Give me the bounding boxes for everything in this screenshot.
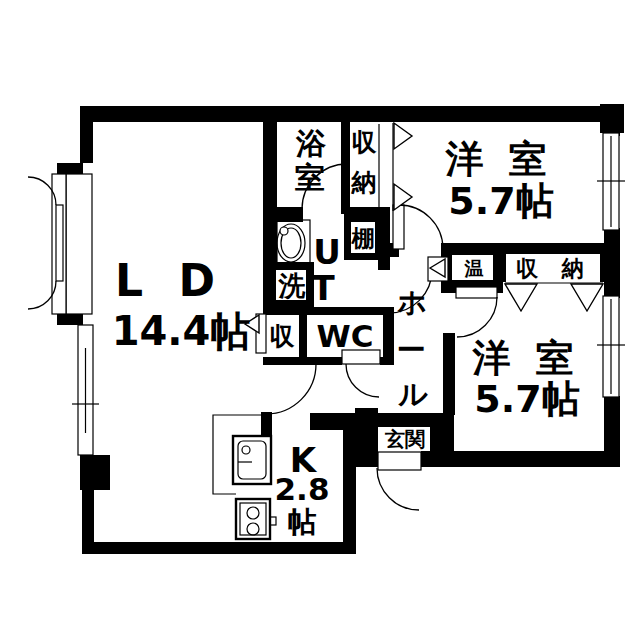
- hall-label-char3: ル: [397, 377, 428, 411]
- wall-bath-closet-divider: [341, 122, 350, 214]
- wall-right-upper: [604, 106, 620, 136]
- wall-bottom-left: [82, 542, 356, 554]
- balcony-center-panel: [56, 205, 63, 281]
- room2-size: 5.7帖: [474, 377, 579, 421]
- wall-entrance-right: [430, 413, 454, 467]
- closet-north-label-char1: 収: [352, 128, 378, 157]
- shelf-label: 棚: [351, 225, 375, 251]
- hall-label-char1: ホ: [397, 285, 427, 319]
- washbasin-faucet: [280, 227, 288, 235]
- heater-label: 温: [464, 257, 484, 279]
- wall-left-lower: [82, 490, 94, 542]
- room1-door-leaf: [393, 205, 404, 249]
- wall-hall-east-lower: [443, 333, 455, 415]
- wall-entrance-left-block: [355, 408, 378, 467]
- closet-south-label: 収 納: [516, 256, 592, 281]
- window-icon-right-north: [597, 133, 625, 230]
- wall-left-upper: [80, 106, 93, 163]
- washbasin-icon: [277, 220, 310, 266]
- room2-door-arc-icon: [457, 297, 497, 337]
- window-icon-left: [72, 325, 99, 455]
- wall-kitchen-counter-stub: [261, 412, 272, 438]
- storage-label: 収: [270, 322, 296, 351]
- room1-door-arc-icon: [399, 205, 443, 249]
- balcony-doors-icon: [28, 174, 92, 314]
- wc-label: WC: [317, 318, 374, 354]
- closet-north-label-char2: 納: [351, 168, 377, 197]
- ut-label-char1: U: [313, 232, 341, 272]
- room1-label: 洋 室: [444, 137, 552, 181]
- kitchen-size-unit: 帖: [288, 505, 317, 539]
- kitchen-size: 2.8: [275, 471, 330, 507]
- room1-size: 5.7帖: [448, 179, 553, 223]
- wall-left-step-block: [80, 455, 110, 490]
- laundry-label: 洗: [278, 270, 306, 301]
- room2-label: 洋 室: [471, 336, 579, 380]
- closet-south-door-triangle-icon: [505, 284, 537, 311]
- closet-north-door-triangle-icon: [394, 123, 412, 149]
- wall-kitchen-east: [343, 427, 356, 553]
- floor-plan: L D 14.4帖 浴 室 収 納 洋 室 5.7帖 棚 U T 洗 収 WC …: [0, 0, 640, 640]
- entrance-label: 玄関: [384, 427, 425, 451]
- wc-door-arc-icon: [346, 364, 379, 397]
- wall-top: [80, 106, 620, 122]
- wall-balcony-header: [57, 163, 83, 175]
- floor-plan-canvas: L D 14.4帖 浴 室 収 納 洋 室 5.7帖 棚 U T 洗 収 WC …: [0, 0, 640, 640]
- window-icon-right-south: [597, 296, 625, 397]
- ld-room-size: 14.4帖: [112, 308, 251, 354]
- bath-label-char2: 室: [295, 160, 325, 195]
- entrance-door-arc-icon: [377, 468, 419, 510]
- room1-door-gap: [399, 243, 441, 257]
- room2-door-leaf: [456, 287, 497, 298]
- wall-right-mid: [604, 228, 620, 298]
- closet-south-door-triangle-icon: [571, 284, 603, 311]
- ld-passage-door-arc-icon: [266, 364, 316, 414]
- ld-room-label: L D: [115, 255, 225, 306]
- hall-label-char2: ー: [397, 333, 426, 367]
- ut-label-char2: T: [311, 268, 335, 308]
- entrance-threshold: [378, 452, 421, 470]
- balcony-opening: [66, 174, 92, 314]
- bath-label-char1: 浴: [295, 126, 326, 161]
